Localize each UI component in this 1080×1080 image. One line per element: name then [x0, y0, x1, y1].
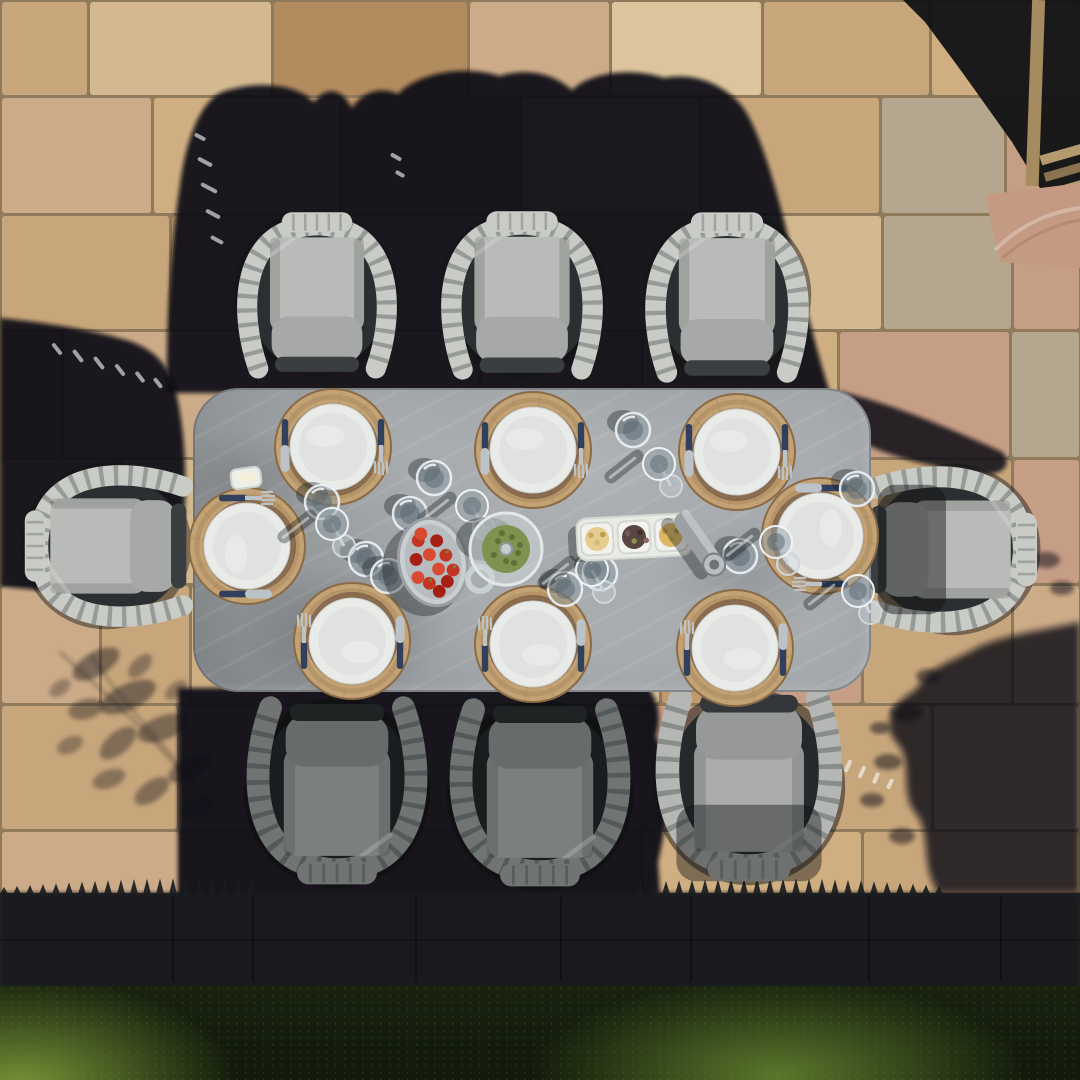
- butter-dish: [230, 466, 262, 490]
- tumbler-glass: [408, 458, 451, 495]
- tumbler-glass: [607, 410, 650, 447]
- tableware-svg: [0, 0, 1080, 1080]
- patio-dining-aerial-photo: Aerial top-down photograph of an eight-s…: [0, 0, 1080, 1080]
- infuser-jug: [456, 513, 542, 591]
- tableware: [0, 0, 1080, 1080]
- place-setting: [475, 392, 591, 508]
- place-setting: [677, 590, 793, 706]
- wine-glass: [602, 447, 682, 497]
- place-setting: [679, 394, 795, 510]
- place-setting: [294, 583, 410, 699]
- place-setting: [189, 488, 305, 604]
